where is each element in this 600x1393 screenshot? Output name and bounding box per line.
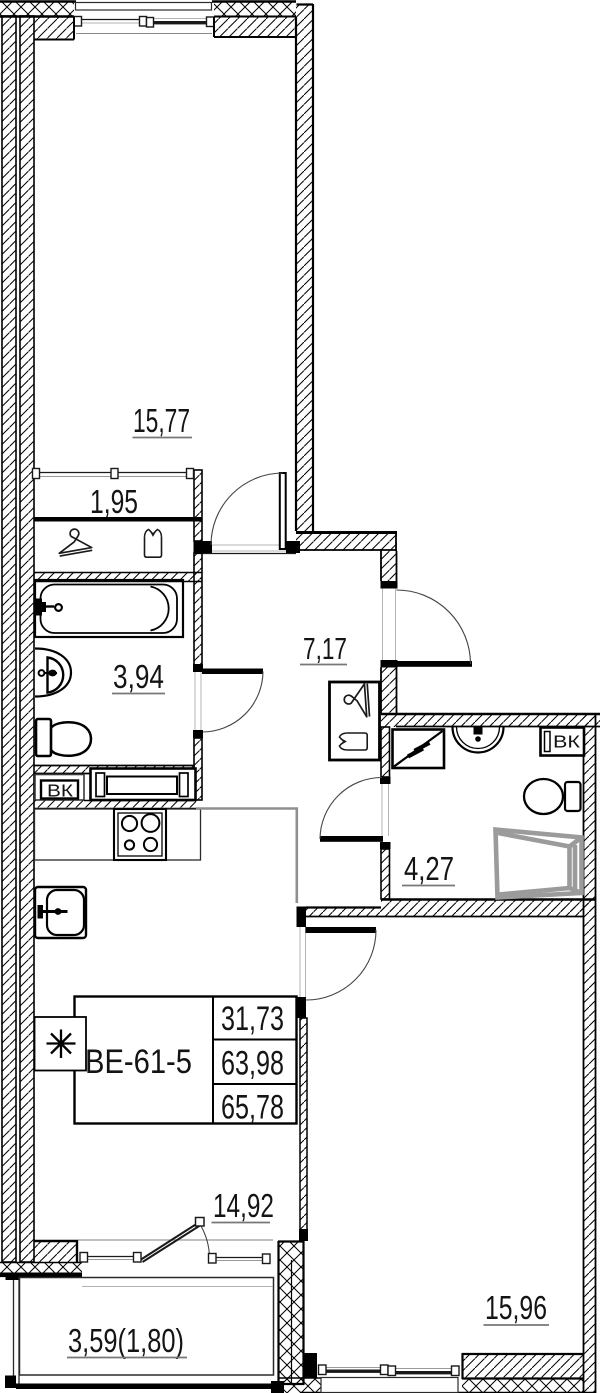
- svg-text:15,77: 15,77: [133, 402, 190, 439]
- svg-text:65,78: 65,78: [221, 1089, 284, 1127]
- svg-text:3,94: 3,94: [113, 658, 164, 695]
- svg-text:7,17: 7,17: [303, 631, 347, 666]
- svg-text:4,27: 4,27: [404, 850, 454, 887]
- svg-text:ВК: ВК: [47, 781, 74, 801]
- svg-text:3,59(1,80): 3,59(1,80): [68, 1322, 184, 1359]
- svg-text:ВЕ-61-5: ВЕ-61-5: [85, 1043, 192, 1081]
- svg-text:14,92: 14,92: [213, 1187, 274, 1224]
- svg-text:ВК: ВК: [553, 732, 581, 752]
- svg-text:15,96: 15,96: [485, 1289, 547, 1326]
- svg-text:31,73: 31,73: [221, 1000, 284, 1038]
- svg-text:1,95: 1,95: [90, 483, 138, 520]
- svg-text:63,98: 63,98: [221, 1045, 284, 1083]
